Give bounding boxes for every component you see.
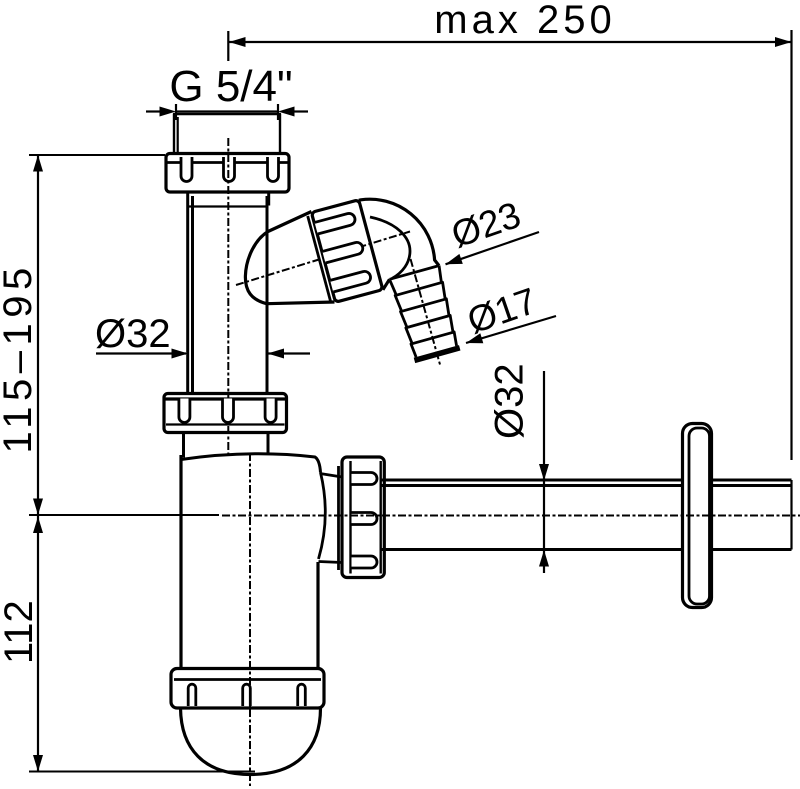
svg-text:Ø17: Ø17 [462, 280, 541, 342]
svg-text:112: 112 [0, 600, 41, 664]
svg-text:G 5/4": G 5/4" [169, 62, 292, 111]
svg-text:Ø32: Ø32 [95, 312, 171, 356]
svg-text:Ø32: Ø32 [488, 363, 532, 439]
svg-text:Ø23: Ø23 [446, 194, 525, 256]
svg-text:max 250: max 250 [434, 0, 615, 42]
svg-text:115–195: 115–195 [0, 262, 40, 453]
